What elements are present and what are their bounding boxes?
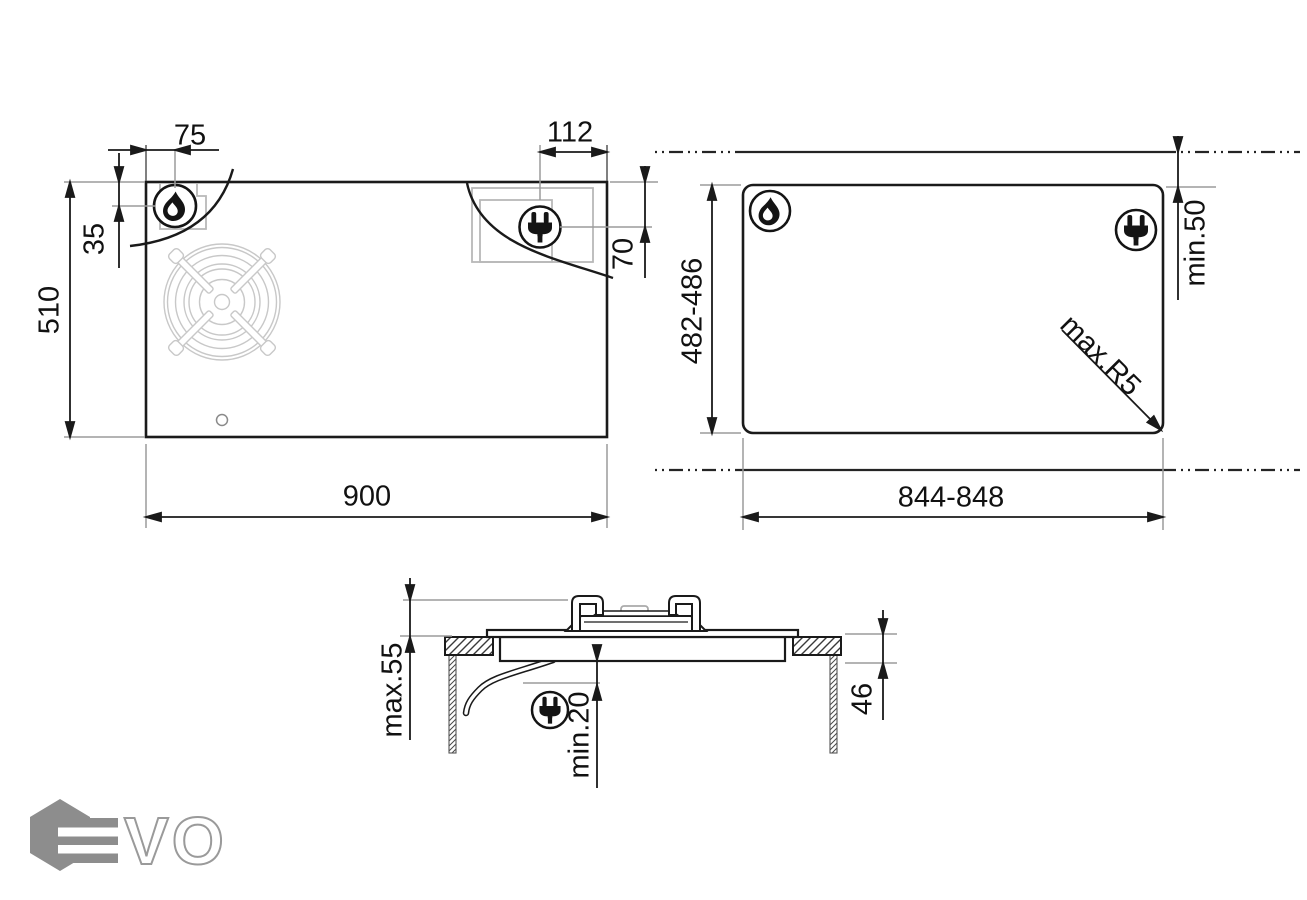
plug-icon xyxy=(1116,210,1156,250)
logo-e-bars xyxy=(58,818,118,863)
control-knob xyxy=(217,415,228,426)
section-view xyxy=(400,578,897,788)
flame-icon xyxy=(154,185,196,227)
evo-logo: VO xyxy=(30,799,227,879)
logo-vo-text: VO xyxy=(124,804,227,879)
dim-gas-offset-top: 35 xyxy=(81,223,110,255)
dim-gas-offset-left: 75 xyxy=(174,122,206,151)
flame-icon xyxy=(750,191,790,231)
cutout-outline xyxy=(743,185,1163,433)
hob-top-view xyxy=(130,169,613,437)
hob-installation-drawing: VO 75 35 510 900 112 70 482-486 844-848 … xyxy=(0,0,1307,900)
worktop-hatch-left xyxy=(445,637,493,655)
dim-elec-offset: 112 xyxy=(547,119,593,148)
dim-cutout-depth: 482-486 xyxy=(679,258,708,364)
burner-profile xyxy=(566,596,706,631)
dim-recess-depth: 46 xyxy=(849,683,878,715)
dim-cutout-width: 844-848 xyxy=(898,484,1004,513)
dim-below-clearance: min.20 xyxy=(566,691,595,778)
worktop-hatch-right xyxy=(793,637,841,655)
hob-body-section xyxy=(500,637,785,661)
cutout-view xyxy=(655,136,1300,530)
dim-hob-depth: 510 xyxy=(36,286,65,334)
dim-hob-width: 900 xyxy=(343,483,391,512)
dim-rear-clearance: min.50 xyxy=(1182,199,1211,286)
plug-icon xyxy=(520,207,561,248)
dim-above-counter: max.55 xyxy=(379,642,408,737)
cabinet-wall-right xyxy=(830,655,837,753)
dim-elec-depth: 70 xyxy=(610,238,639,270)
cabinet-wall-left xyxy=(449,655,456,753)
